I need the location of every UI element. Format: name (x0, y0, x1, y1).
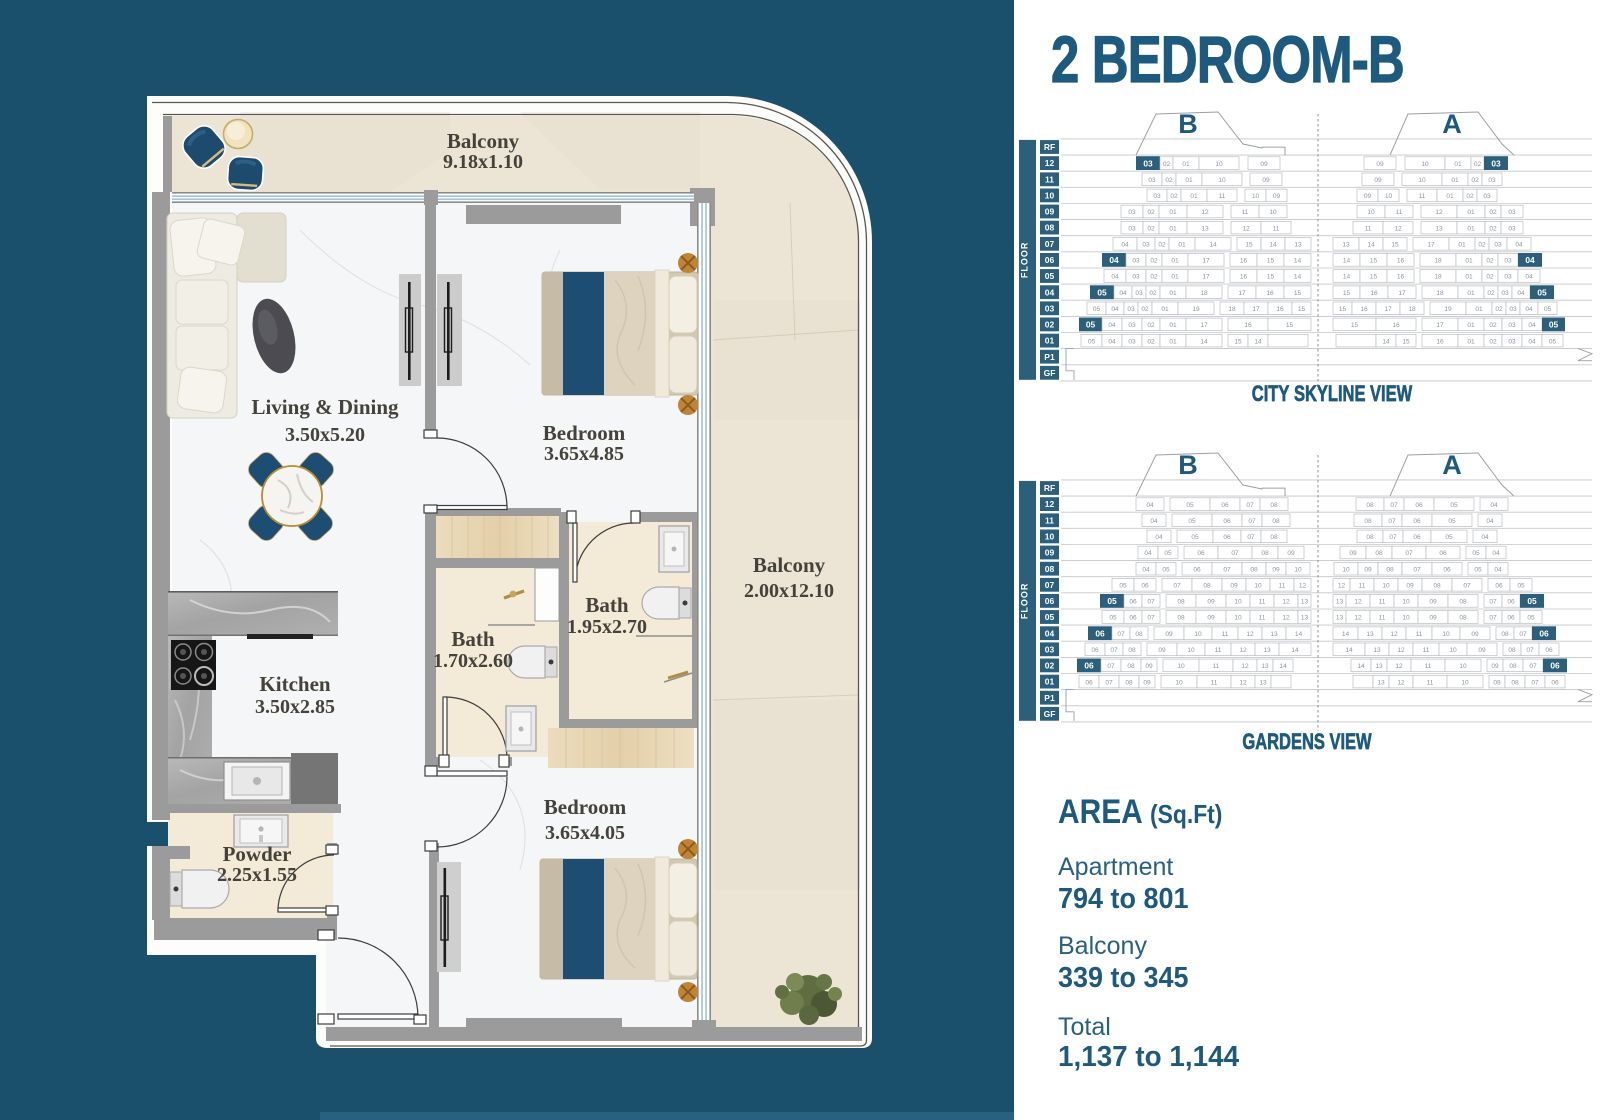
svg-text:09: 09 (1260, 161, 1268, 168)
svg-text:15: 15 (1267, 274, 1275, 281)
svg-text:06: 06 (1084, 661, 1094, 671)
svg-text:16: 16 (1397, 258, 1405, 265)
svg-text:14: 14 (1343, 274, 1351, 281)
svg-text:13: 13 (1201, 225, 1209, 232)
svg-text:04: 04 (1492, 550, 1500, 557)
svg-text:05: 05 (1527, 615, 1535, 622)
svg-text:14: 14 (1279, 663, 1287, 670)
svg-text:11: 11 (1215, 647, 1222, 654)
svg-text:GF: GF (1044, 368, 1056, 378)
svg-text:04: 04 (1108, 338, 1116, 345)
svg-text:03: 03 (1128, 322, 1136, 329)
svg-text:05: 05 (1045, 271, 1055, 281)
svg-text:08: 08 (1250, 566, 1258, 573)
svg-text:07: 07 (1173, 583, 1181, 590)
svg-text:05: 05 (1544, 306, 1552, 313)
svg-text:06: 06 (1551, 679, 1559, 686)
svg-text:11: 11 (1242, 209, 1249, 216)
svg-text:02: 02 (1495, 306, 1503, 313)
svg-text:13: 13 (1259, 679, 1267, 686)
svg-text:06: 06 (1550, 661, 1560, 671)
svg-text:10: 10 (1449, 647, 1457, 654)
svg-text:04: 04 (1109, 255, 1119, 265)
svg-text:09: 09 (1145, 663, 1153, 670)
svg-text:18: 18 (1228, 306, 1236, 313)
svg-text:07: 07 (1246, 502, 1254, 509)
svg-text:06: 06 (1545, 647, 1553, 654)
svg-text:GF: GF (1044, 709, 1056, 719)
svg-text:05: 05 (1119, 583, 1127, 590)
svg-text:09: 09 (1364, 566, 1372, 573)
svg-text:B: B (1178, 109, 1198, 139)
svg-text:02: 02 (1149, 290, 1157, 297)
svg-text:02: 02 (1489, 209, 1497, 216)
svg-text:12: 12 (1394, 225, 1402, 232)
svg-text:11: 11 (1259, 615, 1266, 622)
svg-text:18: 18 (1434, 258, 1442, 265)
svg-text:06: 06 (1193, 566, 1201, 573)
svg-text:09: 09 (1143, 679, 1151, 686)
svg-text:17: 17 (1200, 322, 1208, 329)
svg-text:14: 14 (1343, 258, 1351, 265)
svg-text:04: 04 (1515, 242, 1523, 249)
svg-text:02: 02 (1474, 161, 1482, 168)
svg-text:08: 08 (1270, 534, 1278, 541)
svg-text:12: 12 (1045, 499, 1055, 509)
svg-text:04: 04 (1111, 274, 1119, 281)
svg-text:06: 06 (1439, 550, 1447, 557)
svg-text:05: 05 (1162, 566, 1170, 573)
svg-text:17: 17 (1202, 258, 1210, 265)
svg-text:02: 02 (1150, 274, 1158, 281)
svg-text:17: 17 (1436, 322, 1444, 329)
svg-text:09: 09 (1364, 193, 1372, 200)
svg-text:08: 08 (1501, 631, 1509, 638)
svg-text:01: 01 (1475, 306, 1483, 313)
svg-text:04: 04 (1146, 502, 1154, 509)
svg-text:04: 04 (1045, 287, 1055, 297)
svg-text:03: 03 (1128, 338, 1136, 345)
svg-text:06: 06 (1539, 629, 1549, 639)
svg-text:03: 03 (1508, 209, 1516, 216)
svg-text:14: 14 (1291, 647, 1299, 654)
svg-text:03: 03 (1045, 303, 1055, 313)
svg-text:12: 12 (1045, 158, 1055, 168)
svg-text:04: 04 (1525, 306, 1533, 313)
svg-text:08: 08 (1511, 679, 1519, 686)
svg-text:01: 01 (1171, 274, 1179, 281)
svg-text:02: 02 (1045, 661, 1055, 671)
svg-text:12: 12 (1241, 663, 1249, 670)
svg-text:09: 09 (1207, 599, 1215, 606)
svg-text:03: 03 (1483, 193, 1491, 200)
svg-text:15: 15 (1402, 338, 1410, 345)
svg-text:10: 10 (1194, 631, 1202, 638)
svg-text:12: 12 (1239, 679, 1247, 686)
svg-text:06: 06 (1223, 534, 1231, 541)
svg-text:16: 16 (1240, 258, 1248, 265)
svg-text:09: 09 (1207, 615, 1215, 622)
svg-text:02: 02 (1147, 209, 1155, 216)
svg-text:04: 04 (1150, 518, 1158, 525)
svg-text:07: 07 (1045, 580, 1055, 590)
svg-text:09: 09 (1165, 631, 1173, 638)
svg-text:12: 12 (1299, 583, 1307, 590)
svg-text:14: 14 (1382, 338, 1390, 345)
svg-text:14: 14 (1269, 242, 1277, 249)
svg-text:14: 14 (1254, 338, 1262, 345)
svg-text:05: 05 (1107, 596, 1117, 606)
svg-text:12: 12 (1397, 647, 1405, 654)
svg-text:08: 08 (1045, 564, 1055, 574)
svg-text:02: 02 (1141, 306, 1149, 313)
svg-text:07: 07 (1248, 518, 1256, 525)
svg-text:12: 12 (1435, 209, 1443, 216)
svg-text:13: 13 (1263, 647, 1271, 654)
svg-text:04: 04 (1490, 502, 1498, 509)
svg-text:12: 12 (1282, 599, 1290, 606)
svg-text:04: 04 (1525, 255, 1535, 265)
svg-text:04: 04 (1494, 566, 1502, 573)
svg-text:09: 09 (1349, 550, 1357, 557)
svg-text:05: 05 (1527, 596, 1537, 606)
svg-text:16: 16 (1392, 322, 1400, 329)
svg-text:15: 15 (1339, 306, 1347, 313)
svg-text:04: 04 (1119, 290, 1127, 297)
svg-text:08: 08 (1366, 534, 1374, 541)
svg-text:06: 06 (1495, 583, 1503, 590)
svg-text:07: 07 (1045, 239, 1055, 249)
svg-text:07: 07 (1413, 566, 1421, 573)
svg-text:11: 11 (1365, 225, 1372, 232)
svg-text:09: 09 (1478, 647, 1486, 654)
svg-text:10: 10 (1342, 566, 1350, 573)
svg-text:10: 10 (1367, 209, 1375, 216)
svg-text:13: 13 (1366, 631, 1374, 638)
svg-text:07: 07 (1489, 599, 1497, 606)
svg-text:03: 03 (1128, 209, 1136, 216)
svg-text:06: 06 (1507, 599, 1515, 606)
svg-text:09: 09 (1045, 207, 1055, 217)
svg-text:09: 09 (1287, 550, 1295, 557)
svg-text:03: 03 (1045, 644, 1055, 654)
svg-text:01: 01 (1185, 177, 1193, 184)
svg-text:14: 14 (1345, 647, 1353, 654)
svg-text:10: 10 (1187, 647, 1195, 654)
svg-text:07: 07 (1105, 679, 1113, 686)
svg-text:10: 10 (1218, 177, 1226, 184)
svg-text:01: 01 (1446, 193, 1454, 200)
svg-text:13: 13 (1336, 599, 1344, 606)
svg-text:17: 17 (1202, 274, 1210, 281)
svg-text:11: 11 (1279, 583, 1286, 590)
svg-text:01: 01 (1169, 209, 1177, 216)
svg-text:19: 19 (1444, 306, 1452, 313)
svg-text:13: 13 (1377, 679, 1385, 686)
svg-text:12: 12 (1282, 615, 1290, 622)
svg-text:17: 17 (1384, 306, 1392, 313)
svg-text:11: 11 (1379, 599, 1386, 606)
svg-text:B: B (1178, 450, 1198, 480)
svg-text:08: 08 (1459, 599, 1467, 606)
svg-text:03: 03 (1501, 290, 1509, 297)
svg-text:08: 08 (1127, 663, 1135, 670)
svg-text:07: 07 (1489, 615, 1497, 622)
svg-text:11: 11 (1379, 615, 1386, 622)
svg-text:06: 06 (1415, 502, 1423, 509)
svg-text:02: 02 (1163, 161, 1171, 168)
svg-text:05: 05 (1474, 566, 1482, 573)
svg-text:07: 07 (1147, 615, 1155, 622)
svg-text:15: 15 (1343, 290, 1351, 297)
svg-text:05: 05 (1164, 550, 1172, 557)
svg-text:08: 08 (1272, 518, 1280, 525)
svg-text:06: 06 (1197, 550, 1205, 557)
svg-text:04: 04 (1045, 628, 1055, 638)
svg-text:13: 13 (1294, 242, 1302, 249)
svg-text:08: 08 (1177, 615, 1185, 622)
svg-text:03: 03 (1509, 306, 1517, 313)
svg-text:05: 05 (1088, 338, 1096, 345)
svg-text:10: 10 (1234, 599, 1242, 606)
svg-text:12: 12 (1354, 599, 1362, 606)
svg-text:07: 07 (1231, 550, 1239, 557)
svg-text:04: 04 (1111, 306, 1119, 313)
svg-text:08: 08 (1203, 583, 1211, 590)
svg-text:16: 16 (1266, 290, 1274, 297)
svg-text:FLOOR: FLOOR (1020, 583, 1030, 620)
svg-text:04: 04 (1155, 534, 1163, 541)
svg-text:05: 05 (1517, 583, 1525, 590)
svg-text:11: 11 (1211, 679, 1218, 686)
svg-text:03: 03 (1508, 338, 1516, 345)
svg-text:08: 08 (1366, 502, 1374, 509)
svg-text:01: 01 (1161, 306, 1169, 313)
svg-text:01: 01 (1454, 161, 1462, 168)
svg-text:02: 02 (1487, 290, 1495, 297)
svg-text:13: 13 (1373, 647, 1381, 654)
svg-text:15: 15 (1286, 322, 1294, 329)
svg-text:05: 05 (1472, 550, 1480, 557)
svg-text:02: 02 (1045, 320, 1055, 330)
svg-text:05: 05 (1097, 288, 1107, 298)
svg-text:10: 10 (1252, 193, 1260, 200)
svg-text:03: 03 (1128, 225, 1136, 232)
svg-text:13: 13 (1336, 615, 1344, 622)
svg-text:11: 11 (1425, 663, 1432, 670)
svg-text:08: 08 (1177, 599, 1185, 606)
svg-text:01: 01 (1169, 225, 1177, 232)
svg-text:05: 05 (1448, 518, 1456, 525)
svg-text:01: 01 (1169, 290, 1177, 297)
svg-text:08: 08 (1135, 631, 1143, 638)
svg-text:14: 14 (1357, 663, 1365, 670)
svg-text:13: 13 (1375, 663, 1383, 670)
svg-text:08: 08 (1433, 583, 1441, 590)
svg-text:15: 15 (1267, 258, 1275, 265)
svg-text:15: 15 (1245, 242, 1253, 249)
svg-text:01: 01 (1169, 338, 1177, 345)
svg-text:A: A (1442, 109, 1462, 139)
svg-text:03: 03 (1132, 258, 1140, 265)
svg-text:11: 11 (1219, 193, 1226, 200)
svg-text:10: 10 (1461, 679, 1469, 686)
svg-text:10: 10 (1385, 193, 1393, 200)
svg-text:16: 16 (1397, 274, 1405, 281)
svg-text:15: 15 (1234, 338, 1242, 345)
svg-text:06: 06 (1095, 629, 1105, 639)
svg-text:11: 11 (1213, 663, 1220, 670)
svg-text:04: 04 (1121, 242, 1129, 249)
svg-text:06: 06 (1045, 255, 1055, 265)
svg-text:14: 14 (1294, 274, 1302, 281)
svg-text:02: 02 (1158, 242, 1166, 249)
svg-text:06: 06 (1129, 599, 1137, 606)
svg-text:02: 02 (1471, 177, 1479, 184)
svg-text:15: 15 (1294, 290, 1302, 297)
svg-text:11: 11 (1045, 174, 1054, 184)
svg-text:10: 10 (1254, 583, 1262, 590)
svg-text:07: 07 (1526, 647, 1534, 654)
svg-text:02: 02 (1147, 338, 1155, 345)
svg-text:07: 07 (1117, 631, 1125, 638)
svg-text:12: 12 (1239, 647, 1247, 654)
svg-text:17: 17 (1398, 290, 1406, 297)
svg-text:A: A (1442, 450, 1462, 480)
svg-text:P1: P1 (1044, 693, 1055, 703)
svg-text:03: 03 (1127, 306, 1135, 313)
svg-text:10: 10 (1382, 583, 1390, 590)
svg-text:10: 10 (1459, 663, 1467, 670)
svg-text:03: 03 (1153, 193, 1161, 200)
svg-text:10: 10 (1215, 161, 1223, 168)
svg-text:02: 02 (1478, 242, 1486, 249)
svg-text:01: 01 (1465, 258, 1473, 265)
svg-text:08: 08 (1386, 566, 1394, 573)
svg-text:13: 13 (1261, 663, 1269, 670)
svg-text:09: 09 (1491, 663, 1499, 670)
svg-text:08: 08 (1045, 223, 1055, 233)
svg-text:05: 05 (1186, 502, 1194, 509)
svg-text:13: 13 (1301, 615, 1309, 622)
svg-text:18: 18 (1436, 290, 1444, 297)
svg-text:05: 05 (1450, 502, 1458, 509)
svg-text:02: 02 (1489, 225, 1497, 232)
svg-text:08: 08 (1508, 647, 1516, 654)
svg-text:03: 03 (1504, 274, 1512, 281)
svg-text:16: 16 (1360, 306, 1368, 313)
svg-text:07: 07 (1531, 679, 1539, 686)
svg-text:01: 01 (1171, 258, 1179, 265)
svg-text:14: 14 (1294, 258, 1302, 265)
svg-text:11: 11 (1423, 647, 1430, 654)
svg-text:07: 07 (1388, 518, 1396, 525)
svg-text:04: 04 (1517, 290, 1525, 297)
svg-text:01: 01 (1467, 338, 1475, 345)
svg-text:12: 12 (1242, 225, 1250, 232)
svg-text:RF: RF (1044, 142, 1055, 152)
svg-text:06: 06 (1045, 596, 1055, 606)
svg-text:02: 02 (1147, 225, 1155, 232)
svg-text:07: 07 (1389, 534, 1397, 541)
svg-text:03: 03 (1494, 242, 1502, 249)
svg-text:06: 06 (1413, 534, 1421, 541)
svg-text:09: 09 (1045, 548, 1055, 558)
svg-text:14: 14 (1342, 631, 1350, 638)
svg-text:05: 05 (1109, 615, 1117, 622)
svg-text:14: 14 (1367, 242, 1375, 249)
svg-text:09: 09 (1406, 583, 1414, 590)
svg-text:11: 11 (1396, 209, 1403, 216)
svg-text:07: 07 (1223, 566, 1231, 573)
svg-text:12: 12 (1395, 663, 1403, 670)
svg-text:10: 10 (1294, 566, 1302, 573)
svg-text:09: 09 (1471, 631, 1479, 638)
svg-text:01: 01 (1178, 242, 1186, 249)
svg-text:07: 07 (1519, 631, 1527, 638)
svg-text:08: 08 (1375, 550, 1383, 557)
svg-text:12: 12 (1201, 209, 1209, 216)
svg-text:13: 13 (1342, 242, 1350, 249)
svg-text:05: 05 (1093, 306, 1101, 313)
svg-text:FLOOR: FLOOR (1020, 242, 1030, 279)
svg-text:11: 11 (1045, 515, 1054, 525)
svg-text:07: 07 (1107, 663, 1115, 670)
svg-text:01: 01 (1465, 274, 1473, 281)
svg-text:04: 04 (1525, 274, 1533, 281)
svg-text:P1: P1 (1044, 352, 1055, 362)
svg-text:11: 11 (1222, 631, 1229, 638)
svg-text:03: 03 (1148, 177, 1156, 184)
svg-text:04: 04 (1486, 518, 1494, 525)
svg-text:01: 01 (1045, 677, 1055, 687)
svg-text:06: 06 (1413, 518, 1421, 525)
svg-text:04: 04 (1108, 322, 1116, 329)
svg-text:10: 10 (1442, 631, 1450, 638)
svg-text:11: 11 (1416, 631, 1423, 638)
svg-text:16: 16 (1244, 322, 1252, 329)
svg-text:11: 11 (1419, 193, 1426, 200)
svg-text:15: 15 (1298, 306, 1306, 313)
svg-text:11: 11 (1359, 583, 1366, 590)
svg-text:10: 10 (1402, 615, 1410, 622)
svg-text:11: 11 (1259, 599, 1266, 606)
svg-text:07: 07 (1247, 534, 1255, 541)
svg-text:03: 03 (1508, 225, 1516, 232)
svg-text:05: 05 (1445, 534, 1453, 541)
svg-text:17: 17 (1427, 242, 1435, 249)
svg-text:12: 12 (1246, 631, 1254, 638)
svg-text:08: 08 (1128, 647, 1136, 654)
svg-text:10: 10 (1045, 191, 1055, 201)
svg-text:03: 03 (1143, 158, 1153, 168)
svg-text:02: 02 (1489, 338, 1497, 345)
svg-text:09: 09 (1230, 583, 1238, 590)
svg-text:04: 04 (1142, 566, 1150, 573)
svg-text:07: 07 (1405, 550, 1413, 557)
svg-text:03: 03 (1135, 290, 1143, 297)
svg-text:08: 08 (1125, 679, 1133, 686)
svg-text:02: 02 (1150, 258, 1158, 265)
svg-text:03: 03 (1508, 322, 1516, 329)
svg-text:01: 01 (1451, 177, 1459, 184)
svg-text:01: 01 (1190, 193, 1198, 200)
svg-text:14: 14 (1295, 631, 1303, 638)
svg-text:15: 15 (1370, 258, 1378, 265)
svg-text:05: 05 (1188, 518, 1196, 525)
svg-text:09: 09 (1493, 679, 1501, 686)
svg-text:08: 08 (1261, 550, 1269, 557)
